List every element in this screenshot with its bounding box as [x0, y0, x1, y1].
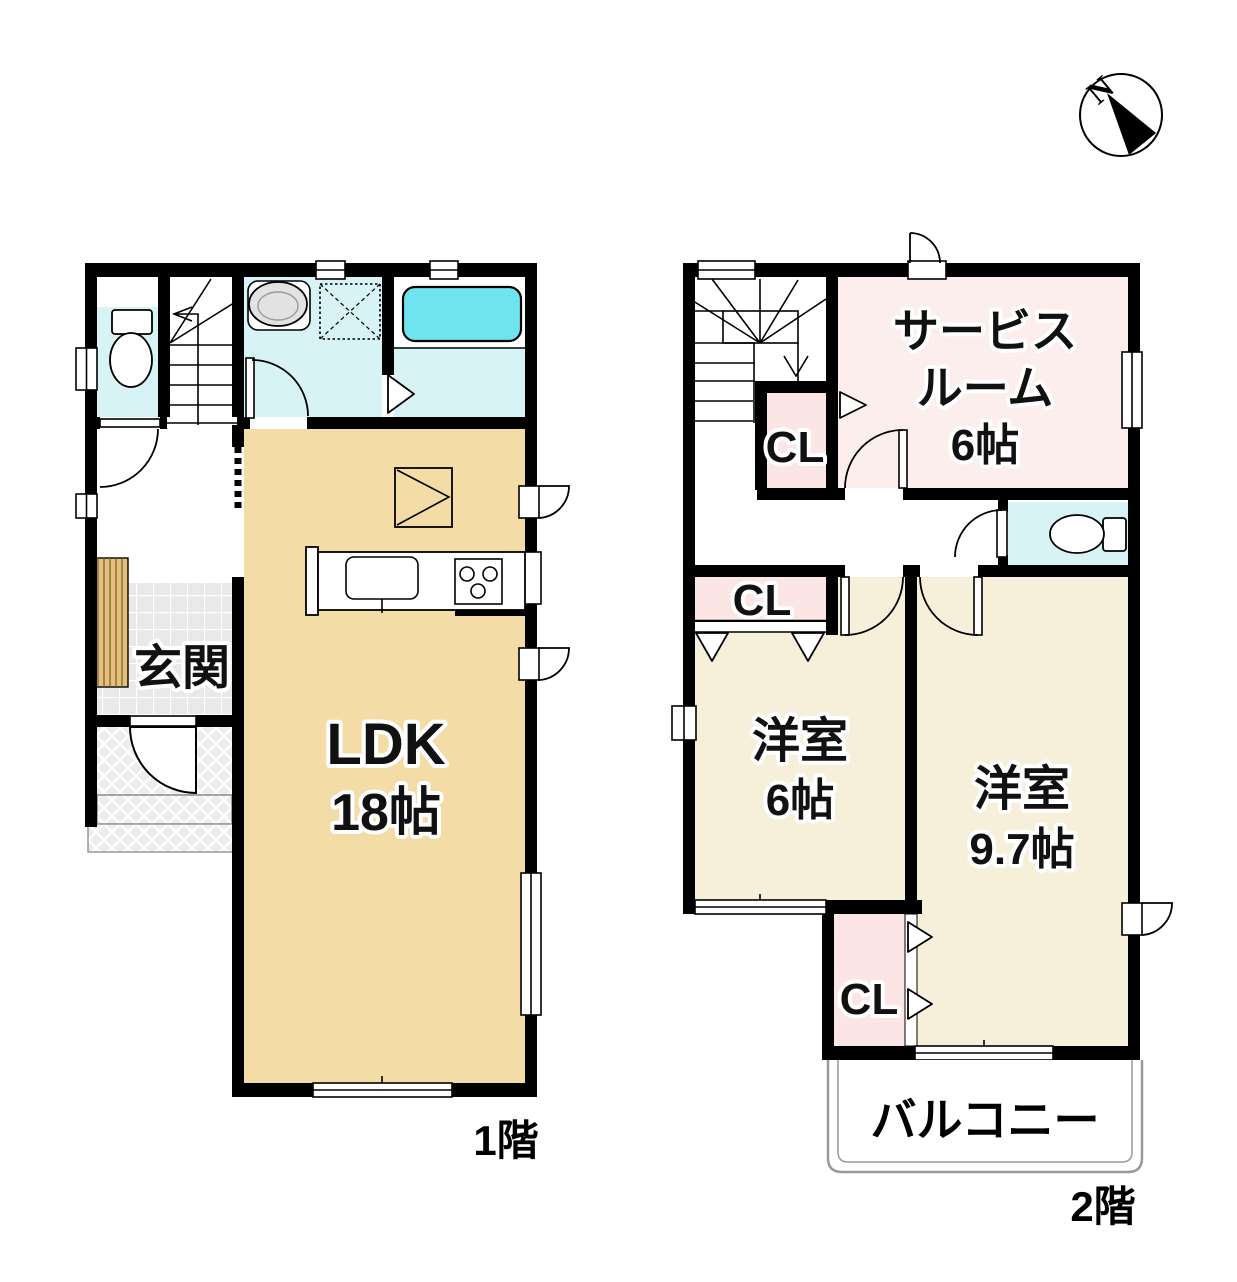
western6-label: 洋室 [752, 715, 848, 768]
bathtub-icon [403, 287, 521, 341]
compass-icon: N [1080, 68, 1162, 156]
service-room-label-2: ルーム [917, 362, 1054, 414]
western97-size-label: 9.7帖 [969, 825, 1074, 874]
closet-label: CL [766, 423, 825, 472]
genkan-wood-step [92, 558, 128, 687]
floor1-name-label: 1階 [473, 1117, 538, 1164]
window [1122, 352, 1142, 428]
awning-window [519, 648, 569, 680]
balcony-label: バルコニー [870, 1094, 1099, 1146]
toilet-counter [97, 277, 158, 307]
closet-label: CL [733, 576, 792, 625]
window [672, 706, 696, 740]
ldk-label: LDK [326, 712, 445, 777]
stairs-down-arrow [784, 356, 808, 376]
kitchen-sink [346, 557, 418, 599]
floorplan-drawing: 玄関 LDK 18帖 1階 [0, 0, 1237, 1282]
stove-icon [455, 559, 502, 604]
door-arc [955, 510, 1007, 557]
western6-size-label: 6帖 [766, 776, 834, 825]
western97-label: 洋室 [974, 763, 1070, 816]
floorplan-page: 玄関 LDK 18帖 1階 [0, 0, 1237, 1282]
entrance-door-leaf [130, 716, 196, 726]
window [521, 873, 541, 1015]
awning-window [519, 486, 569, 518]
service-room-size-label: 6帖 [951, 421, 1019, 470]
room-bath [394, 348, 525, 417]
toilet-icon [1050, 515, 1126, 553]
porch-step-2 [88, 824, 235, 852]
ldk-size-label: 18帖 [331, 784, 441, 842]
service-room-label-1: サービス [893, 305, 1077, 357]
awning-window [1122, 903, 1172, 935]
window [430, 261, 458, 279]
window [76, 494, 97, 518]
kitchen-counter [306, 547, 525, 615]
floor1-plan: 玄関 LDK 18帖 1階 [76, 261, 569, 1164]
floor2-name-label: 2階 [1070, 1183, 1135, 1230]
closet-label: CL [840, 975, 899, 1024]
window [316, 261, 345, 279]
floor2-plan: サービス ルーム 6帖 CL CL 洋室 6帖 洋室 9.7帖 CL バルコニー… [672, 233, 1172, 1230]
window [698, 261, 755, 279]
toilet-icon [110, 310, 152, 387]
door-arc [100, 419, 160, 487]
window [76, 348, 97, 390]
porch-step-1 [97, 795, 232, 824]
genkan-label: 玄関 [134, 642, 230, 695]
sink-icon [248, 281, 310, 330]
stairs-1f [167, 279, 237, 425]
outswing-door [908, 233, 946, 279]
